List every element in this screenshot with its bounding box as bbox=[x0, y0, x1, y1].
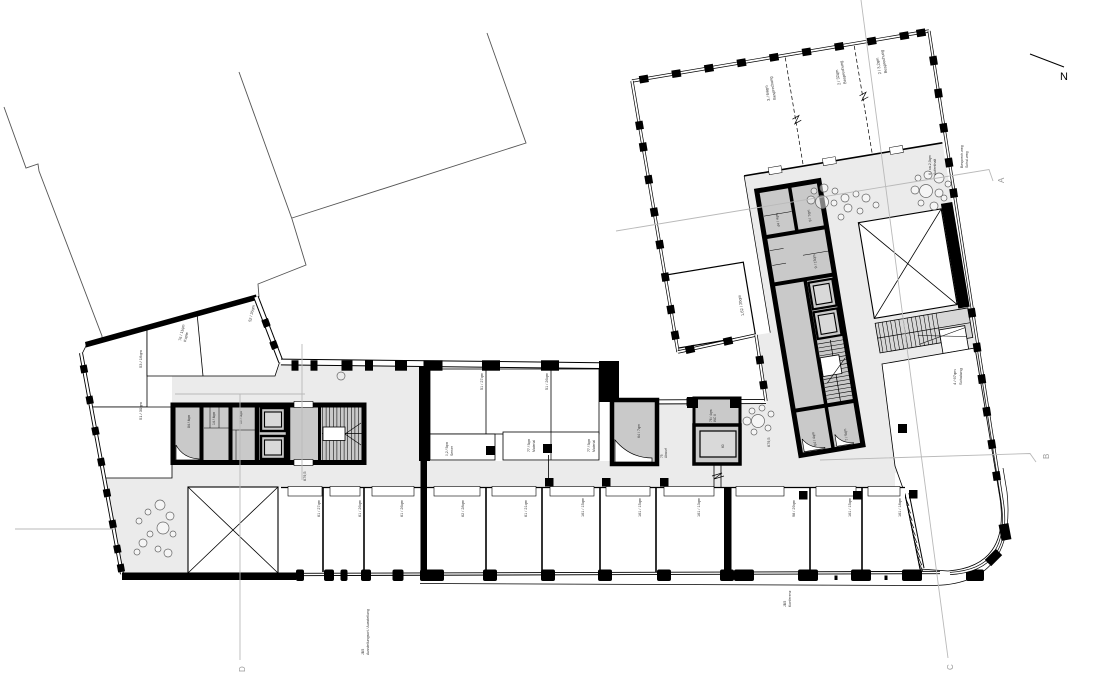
svg-text:Konferenz: Konferenz bbox=[788, 590, 792, 607]
svg-text:0,2 / 5qm: 0,2 / 5qm bbox=[445, 442, 449, 456]
svg-text:98 / 29qm: 98 / 29qm bbox=[792, 500, 796, 517]
svg-text:Schul.weg: Schul.weg bbox=[965, 151, 969, 168]
svg-text:Besprech.weg: Besprech.weg bbox=[960, 145, 964, 168]
svg-text:51 / 30qm: 51 / 30qm bbox=[138, 402, 143, 420]
svg-text:Schulung: Schulung bbox=[958, 368, 963, 385]
svg-text:A: A bbox=[997, 177, 1006, 183]
svg-text:161 / 15qm: 161 / 15qm bbox=[581, 498, 585, 517]
svg-text:161 / 13qm: 161 / 13qm bbox=[697, 498, 701, 517]
svg-text:6 / ca.2,0qm: 6 / ca.2,0qm bbox=[928, 155, 932, 175]
svg-text:161 / 15qm: 161 / 15qm bbox=[638, 498, 642, 517]
svg-text:62 / 28qm: 62 / 28qm bbox=[461, 500, 465, 517]
svg-text:679,5: 679,5 bbox=[767, 437, 771, 447]
svg-text:51 / 26qm: 51 / 26qm bbox=[545, 373, 549, 390]
svg-text:Ausstellungsort / Ausstellung: Ausstellungsort / Ausstellung bbox=[366, 609, 370, 655]
svg-text:B: B bbox=[1042, 454, 1051, 459]
svg-text:53 / 16qm: 53 / 16qm bbox=[138, 350, 143, 368]
svg-text:64 / 7qm: 64 / 7qm bbox=[637, 424, 641, 438]
svg-text:4 / 67qm: 4 / 67qm bbox=[952, 369, 957, 385]
svg-text:Abwurf: Abwurf bbox=[664, 448, 668, 458]
svg-text:77 / 5qm: 77 / 5qm bbox=[587, 439, 591, 452]
svg-text:51 / 27qm: 51 / 27qm bbox=[480, 373, 484, 390]
svg-text:N: N bbox=[1060, 71, 1068, 83]
svg-text:C: C bbox=[946, 664, 955, 670]
svg-text:WC II: WC II bbox=[713, 414, 717, 422]
svg-text:61 / 26qm: 61 / 26qm bbox=[358, 500, 362, 517]
svg-text:161 / 15qm: 161 / 15qm bbox=[848, 498, 852, 517]
svg-text:61 / 26qm: 61 / 26qm bbox=[400, 500, 404, 517]
svg-text:161 / 18qm: 161 / 18qm bbox=[898, 498, 902, 517]
svg-text:60: 60 bbox=[721, 444, 725, 448]
svg-text:84 / 4qm: 84 / 4qm bbox=[187, 415, 191, 428]
svg-text:Server: Server bbox=[450, 445, 454, 456]
svg-text:Material: Material bbox=[592, 440, 596, 452]
svg-text:679,5: 679,5 bbox=[303, 471, 307, 481]
svg-text:61 / 21qm: 61 / 21qm bbox=[524, 500, 528, 517]
svg-text:Material: Material bbox=[532, 440, 536, 452]
svg-text:JB5: JB5 bbox=[783, 601, 787, 607]
svg-text:D: D bbox=[238, 666, 247, 672]
svg-text:JB5: JB5 bbox=[361, 649, 365, 655]
svg-text:Aufenthalt: Aufenthalt bbox=[933, 159, 937, 175]
svg-text:77 / 5qm: 77 / 5qm bbox=[527, 439, 531, 452]
svg-text:14 / 4qm: 14 / 4qm bbox=[212, 412, 216, 425]
svg-text:61 / 27qm: 61 / 27qm bbox=[317, 500, 321, 517]
